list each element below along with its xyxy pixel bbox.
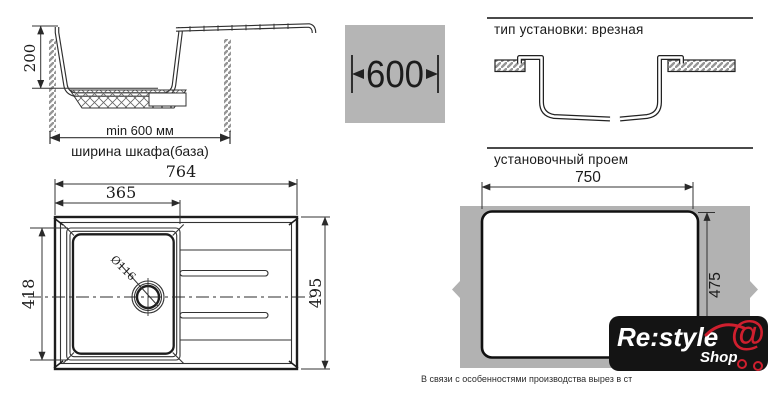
divider-top — [487, 17, 753, 19]
overall-depth-label: 495 — [306, 278, 325, 309]
dim-764 — [55, 179, 297, 215]
overall-width-label: 764 — [166, 162, 197, 181]
cart-wheel-icon — [737, 359, 747, 369]
cabinet-wall-left — [49, 39, 56, 132]
left-arrow-icon — [352, 69, 364, 79]
sink-spec-sheet: 200 min 600 мм ширина шкафа(база) 600 ти… — [0, 0, 776, 406]
dim-200-label: 200 — [21, 44, 39, 73]
divider-middle — [487, 147, 753, 149]
inset-sink-profile — [520, 58, 682, 120]
bowl-width-label: 365 — [106, 183, 137, 202]
bowl-depth-label: 418 — [19, 279, 38, 310]
cutout-height-label: 475 — [707, 272, 724, 298]
production-note: В связи с особенностями производства выр… — [421, 374, 632, 384]
countertop-right — [668, 60, 735, 72]
cabinet-wall-right — [224, 39, 231, 132]
cabinet-width-label: ширина шкафа(база) — [71, 143, 209, 159]
drainboard-grooves — [180, 250, 292, 340]
min-width-label: min 600 мм — [106, 123, 174, 138]
cabinet-width-badge: 600 — [345, 25, 445, 123]
sink-profile — [57, 26, 314, 95]
dim-750 — [482, 182, 693, 209]
badge-drawing: 600 — [345, 25, 445, 123]
logo-cart-handle-icon — [704, 319, 746, 337]
bowl — [63, 225, 184, 364]
cutout-width-label: 750 — [575, 169, 601, 186]
installation-type-title: тип установки: врезная — [494, 22, 644, 37]
restyle-logo: Re:style Shop @ — [609, 316, 768, 371]
dim-365 — [55, 200, 180, 224]
top-view-drawing: Ø116 764 365 418 — [18, 158, 340, 406]
sink-base-band — [70, 90, 186, 108]
right-arrow-icon — [426, 69, 438, 79]
badge-600-label: 600 — [366, 54, 424, 96]
cart-wheel-icon — [753, 361, 763, 371]
side-view-drawing: 200 min 600 мм ширина шкафа(база) — [18, 8, 320, 160]
installation-type-drawing — [483, 50, 775, 142]
sink-body — [54, 217, 298, 369]
